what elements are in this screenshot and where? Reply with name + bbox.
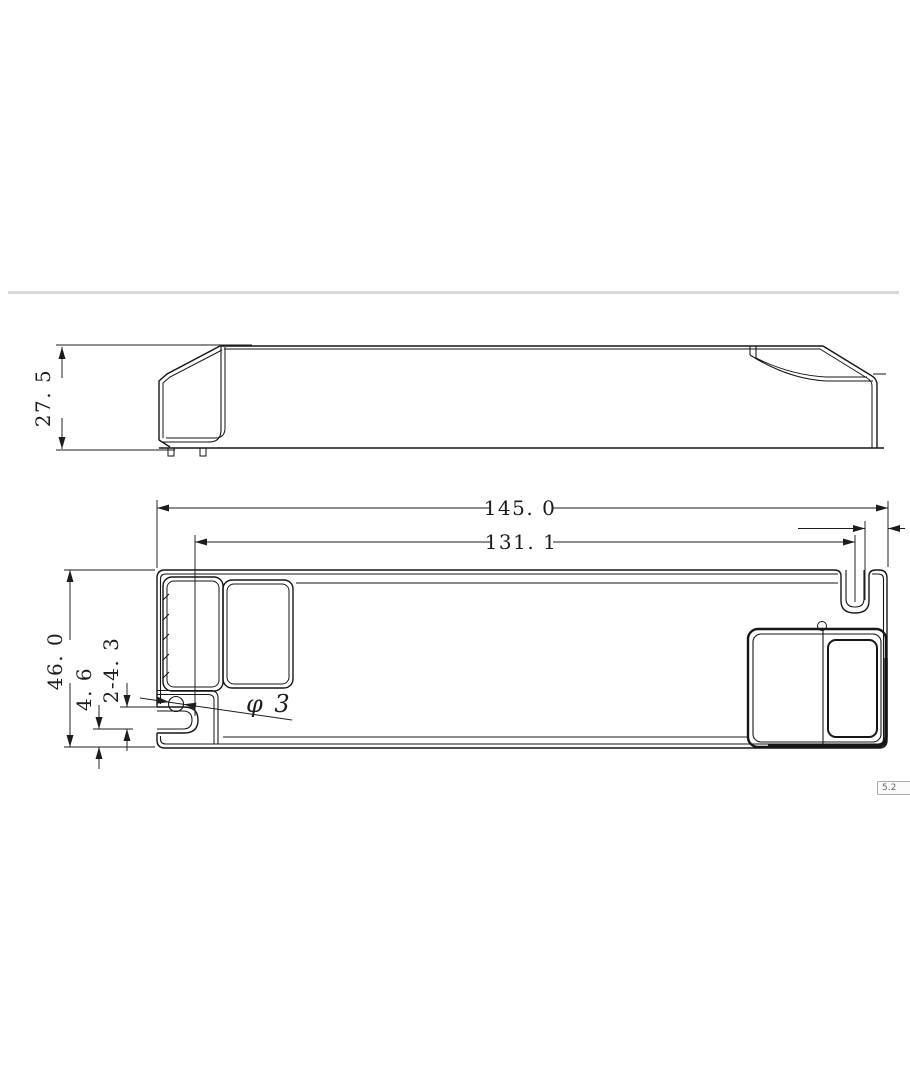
left-terminal-block	[163, 577, 293, 691]
right-terminal-block	[748, 629, 886, 747]
dim-slot-distance-label: 131. 1	[485, 530, 558, 554]
side-view-dimension-27-5: 27. 5	[31, 345, 252, 450]
plan-view-outline	[157, 570, 887, 748]
dim-overall-width-label: 46. 0	[43, 632, 67, 690]
plan-view-dimensions: 145. 0 131. 1 46. 0 4. 6	[43, 496, 905, 769]
dim-hole-diameter-label: φ 3	[246, 690, 292, 718]
dim-slot-offset-label: 4. 6	[72, 667, 96, 711]
technical-drawing-page: 27. 5	[0, 0, 910, 1080]
side-view-outline	[159, 346, 886, 456]
dim-height-label: 27. 5	[31, 369, 55, 427]
scale-badge: 5.2	[877, 781, 910, 795]
dim-slot-width-label: 2-4. 3	[99, 637, 123, 704]
scale-badge-text: 5.2	[882, 783, 896, 793]
enclosure-dimension-drawing: 27. 5	[0, 0, 910, 1080]
dim-overall-length-label: 145. 0	[484, 496, 557, 520]
